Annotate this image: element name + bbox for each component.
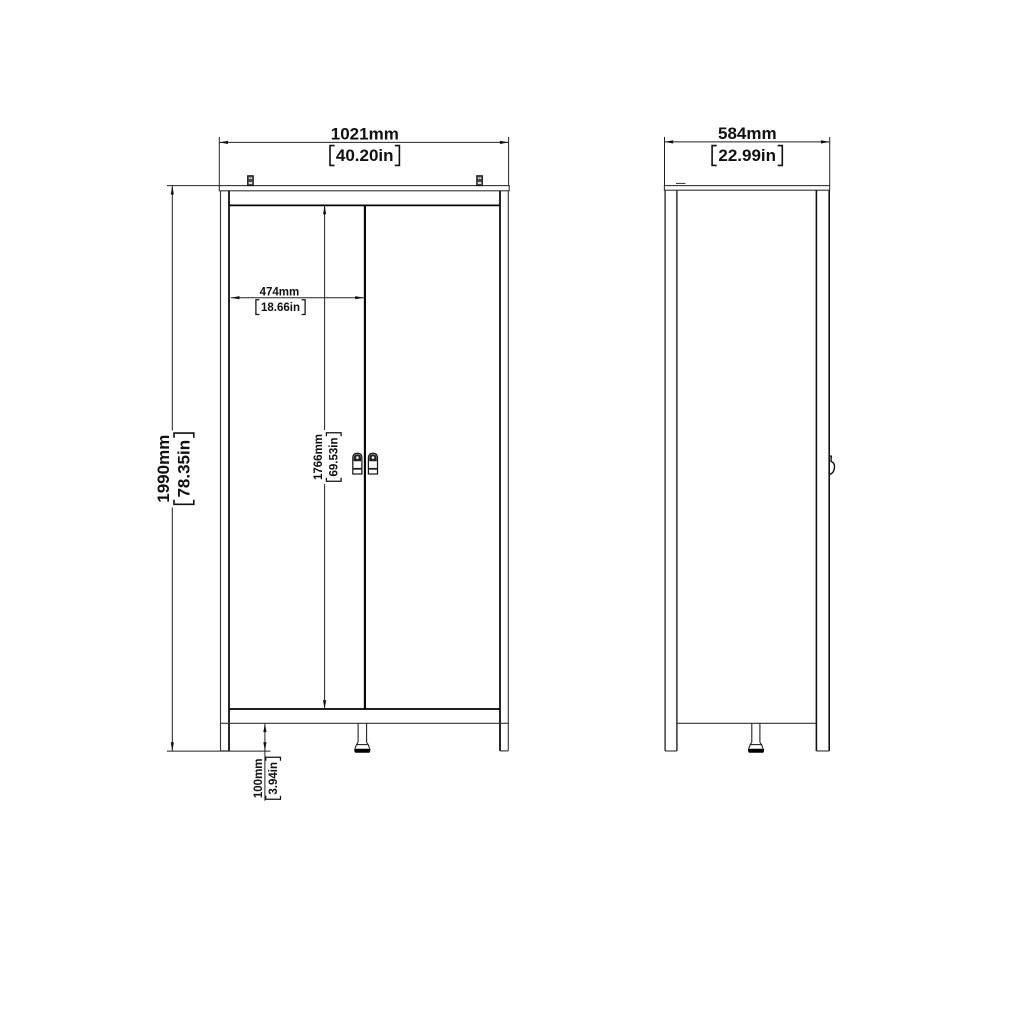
svg-text:18.66in: 18.66in [261,302,300,314]
svg-text:1990mm: 1990mm [154,435,173,503]
svg-text:3.94in: 3.94in [268,762,280,795]
svg-text:1766mm: 1766mm [313,434,325,480]
svg-text:69.53in: 69.53in [329,438,341,477]
svg-text:100mm: 100mm [253,758,265,798]
svg-text:584mm: 584mm [718,124,777,143]
svg-text:40.20in: 40.20in [336,146,394,165]
svg-text:1021mm: 1021mm [331,124,399,143]
svg-text:22.99in: 22.99in [718,146,776,165]
svg-text:78.35in: 78.35in [175,440,194,498]
svg-text:474mm: 474mm [260,287,300,299]
